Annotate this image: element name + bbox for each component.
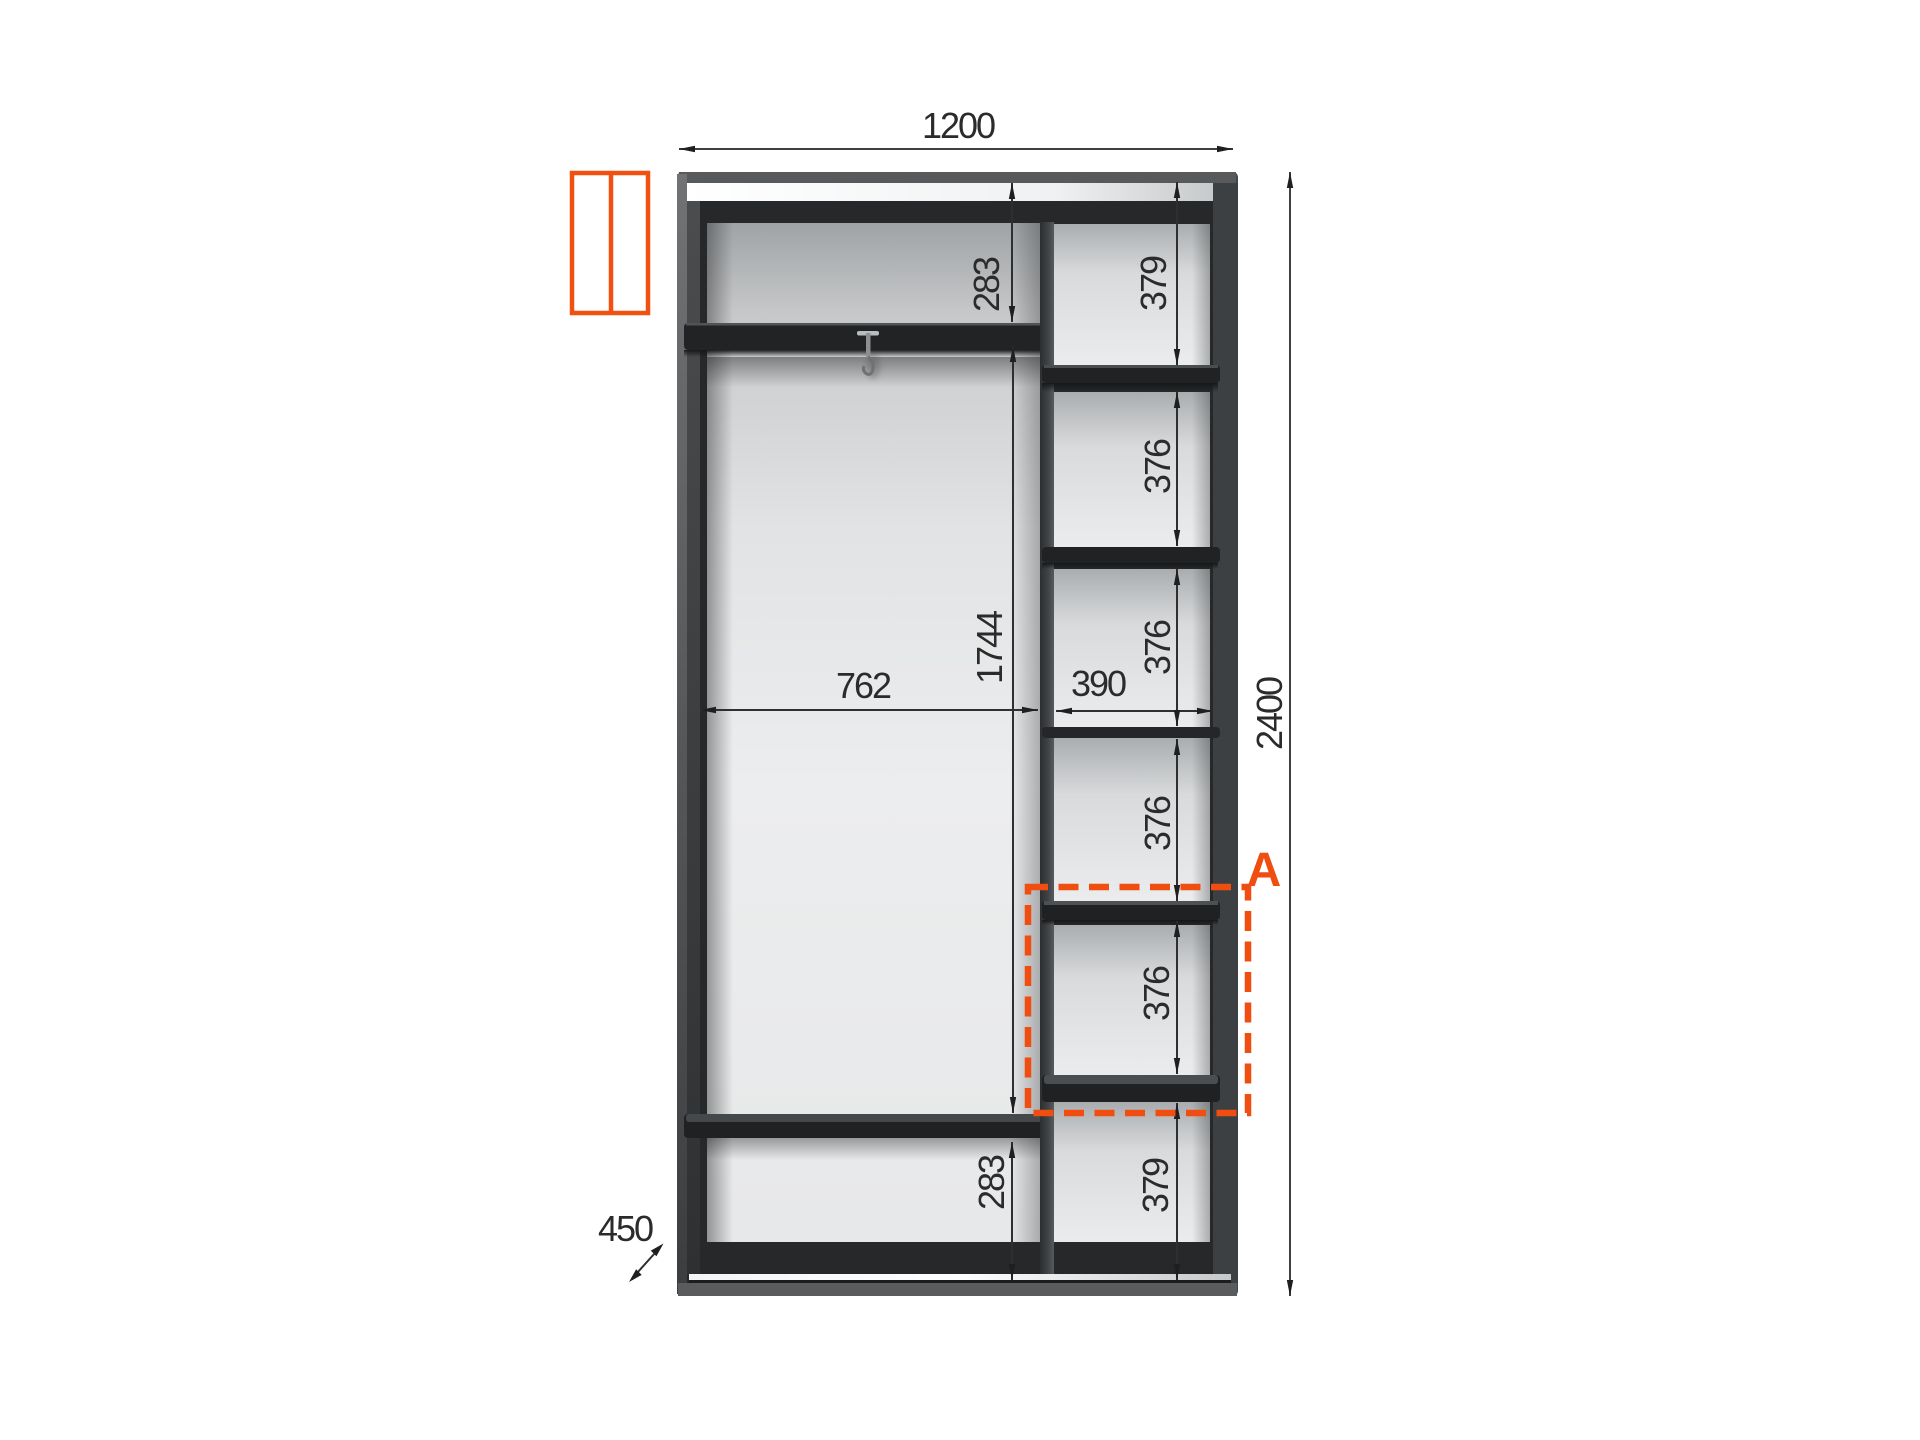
svg-text:283: 283	[971, 1155, 1012, 1210]
svg-text:376: 376	[1137, 439, 1178, 494]
svg-text:376: 376	[1136, 966, 1177, 1021]
svg-text:762: 762	[836, 665, 891, 706]
svg-text:376: 376	[1137, 796, 1178, 851]
svg-text:2400: 2400	[1249, 677, 1290, 750]
svg-text:1200: 1200	[922, 105, 995, 146]
svg-text:379: 379	[1135, 1158, 1176, 1213]
svg-text:390: 390	[1071, 663, 1126, 704]
svg-text:283: 283	[966, 257, 1007, 312]
svg-text:1744: 1744	[969, 611, 1010, 684]
svg-text:A: A	[1247, 844, 1282, 897]
svg-text:376: 376	[1137, 620, 1178, 675]
svg-text:450: 450	[598, 1208, 653, 1249]
svg-text:379: 379	[1133, 256, 1174, 311]
